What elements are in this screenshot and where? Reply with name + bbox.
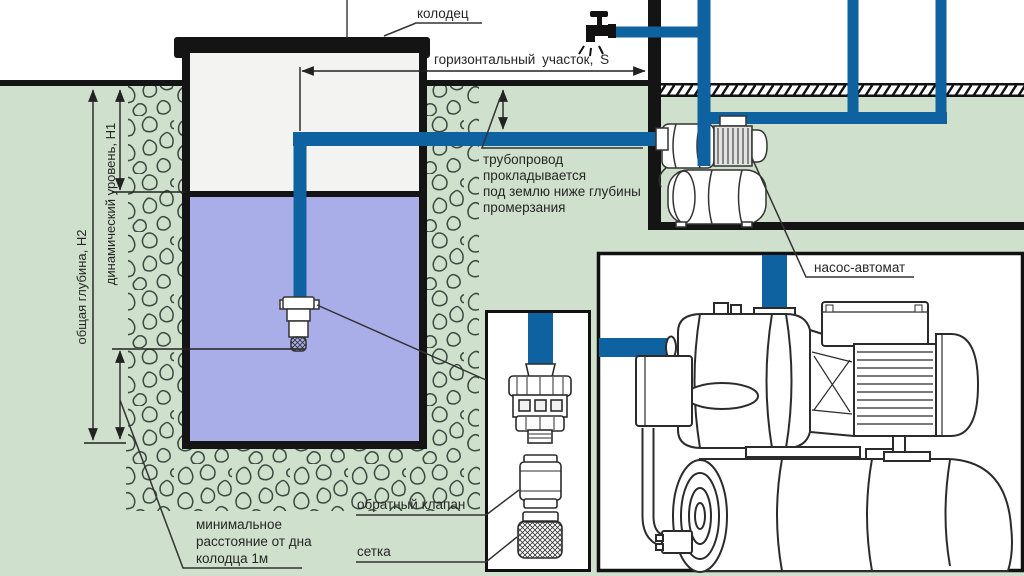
dynamic-level-label: динамический уровень, Н1 [103, 123, 119, 285]
pipeline-note-line4: промерзания [483, 200, 641, 216]
diagram-artwork [0, 0, 1024, 576]
min-distance-note: минимальное расстояние от дна колодца 1м [196, 516, 312, 567]
ground-line-right [425, 80, 661, 86]
well-cap-lip-left [174, 37, 185, 58]
pipeline-note-line2: прокладывается [483, 168, 641, 184]
strainer-label: сетка [357, 544, 391, 560]
pipeline-note: трубопровод прокладывается под землю ниж… [483, 152, 641, 216]
well-wall-right [419, 52, 427, 447]
well-label: колодец [417, 6, 469, 22]
pipeline-note-line3: под землю ниже глубины [483, 184, 641, 200]
horizontal-section-label: горизонтальный участок, S [434, 52, 609, 68]
total-depth-label: общая глубина, Н2 [74, 230, 90, 345]
pipeline-note-line1: трубопровод [483, 152, 641, 168]
well-bottom [182, 441, 427, 449]
house-interior [661, 0, 1024, 83]
min-distance-line3: колодца 1м [196, 550, 312, 567]
min-distance-line1: минимальное [196, 516, 312, 533]
floor-hatch-bottom-border [661, 95, 1024, 98]
ground-line-left [0, 80, 182, 86]
pump-station-label: насос-автомат [814, 260, 905, 276]
min-distance-line2: расстояние от дна [196, 533, 312, 550]
faucet-icon [579, 11, 616, 56]
floor-hatch-top-border [661, 83, 1024, 86]
well-cap-lip-right [419, 37, 430, 58]
well-water-supply-diagram: колодец горизонтальный участок, S трубоп… [0, 0, 1024, 576]
check-valve-label: обратный клапан [357, 497, 465, 513]
well-cap [174, 37, 430, 53]
house-floor-hatch [661, 85, 1024, 95]
well-wall-left [182, 52, 190, 447]
